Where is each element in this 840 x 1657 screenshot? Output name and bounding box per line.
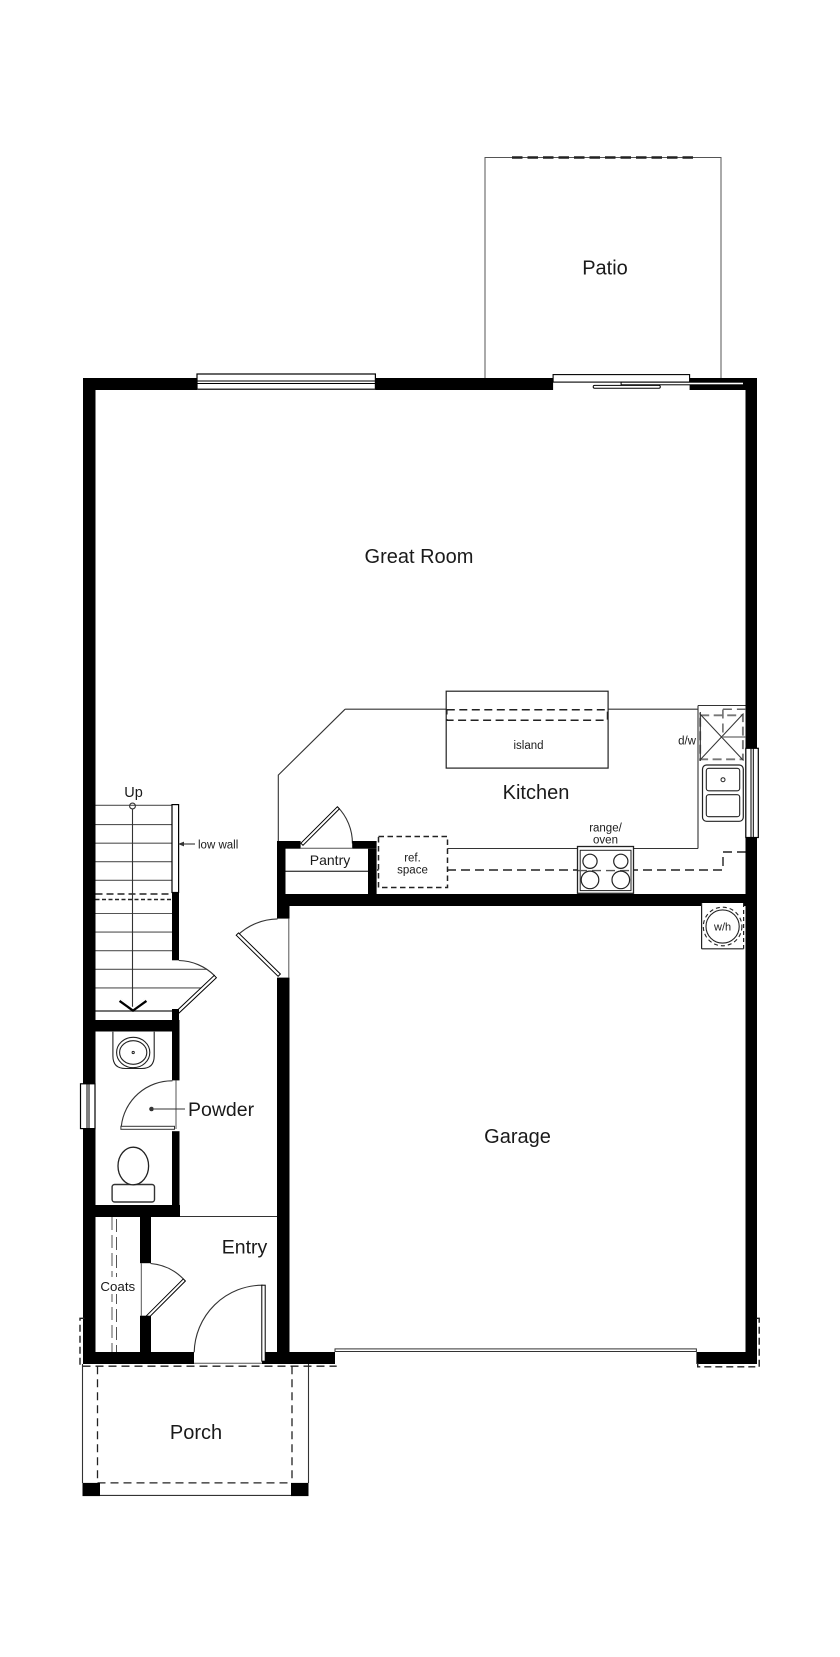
svg-text:d/w: d/w [678,736,697,748]
svg-text:Pantry: Pantry [310,852,350,868]
svg-text:Entry: Entry [222,1237,268,1259]
svg-text:low wall: low wall [198,840,238,852]
svg-text:island: island [513,740,543,752]
svg-text:space: space [397,865,428,877]
svg-text:Porch: Porch [170,1422,222,1444]
svg-text:w/h: w/h [713,922,731,934]
svg-text:range/: range/ [589,823,622,835]
svg-text:Powder: Powder [188,1099,255,1121]
svg-text:Great Room: Great Room [365,546,474,568]
svg-text:Coats: Coats [100,1279,135,1294]
svg-text:Patio: Patio [582,258,628,280]
svg-text:Kitchen: Kitchen [503,782,570,804]
svg-text:Garage: Garage [484,1126,551,1148]
svg-text:ref.: ref. [404,853,421,865]
svg-text:oven: oven [593,835,618,847]
svg-text:Up: Up [124,785,143,801]
